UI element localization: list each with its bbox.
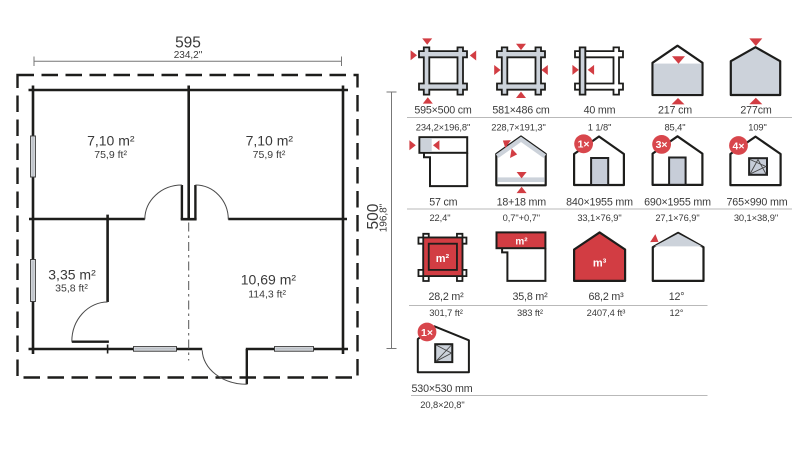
svg-text:35,8 m²: 35,8 m² [513,291,549,303]
svg-text:m³: m³ [593,257,607,269]
svg-text:1×: 1× [421,327,433,339]
svg-text:530×530 mm: 530×530 mm [412,383,473,395]
svg-text:217 cm: 217 cm [658,105,692,117]
svg-text:85,4": 85,4" [664,123,685,133]
svg-text:7,10 m²: 7,10 m² [246,132,294,148]
svg-text:75,9 ft²: 75,9 ft² [94,149,127,161]
svg-text:383 ft²: 383 ft² [517,308,543,318]
svg-text:581×486 cm: 581×486 cm [492,105,550,117]
svg-text:22,4": 22,4" [429,213,450,223]
svg-text:3,35 m²: 3,35 m² [48,267,96,283]
svg-text:7,10 m²: 7,10 m² [87,132,135,148]
svg-text:18+18 mm: 18+18 mm [497,197,547,209]
svg-text:234,2": 234,2" [174,50,203,61]
svg-text:20,8×20,8": 20,8×20,8" [420,400,464,410]
svg-text:75,9 ft²: 75,9 ft² [253,149,286,161]
svg-text:1 1/8": 1 1/8" [588,123,612,133]
svg-text:2407,4 ft³: 2407,4 ft³ [587,308,626,318]
svg-text:30,1×38,9": 30,1×38,9" [734,213,778,223]
svg-text:27,1×76,9": 27,1×76,9" [655,213,699,223]
svg-text:840×1955 mm: 840×1955 mm [566,197,633,209]
svg-text:m²: m² [515,236,528,247]
svg-text:690×1955 mm: 690×1955 mm [644,197,711,209]
svg-text:68,2 m³: 68,2 m³ [589,291,625,303]
svg-text:765×990 mm: 765×990 mm [727,197,788,209]
svg-text:1×: 1× [578,139,590,151]
svg-text:m²: m² [436,253,450,265]
svg-text:301,7 ft²: 301,7 ft² [429,308,463,318]
svg-text:12°: 12° [670,308,684,318]
svg-text:277cm: 277cm [740,105,771,117]
svg-text:12°: 12° [669,291,685,303]
svg-text:35,8 ft²: 35,8 ft² [55,282,88,294]
svg-text:109": 109" [748,123,767,133]
svg-text:3×: 3× [656,139,668,151]
svg-text:28,2 m²: 28,2 m² [429,291,465,303]
svg-text:0,7"+0,7": 0,7"+0,7" [503,213,540,223]
svg-text:228,7×191,3": 228,7×191,3" [491,123,546,133]
svg-text:10,69 m²: 10,69 m² [241,271,297,287]
svg-text:114,3 ft²: 114,3 ft² [248,289,286,301]
svg-text:595: 595 [175,34,201,51]
svg-text:57 cm: 57 cm [429,197,457,209]
svg-text:234,2×196,8": 234,2×196,8" [416,123,471,133]
svg-text:40 mm: 40 mm [584,105,616,117]
svg-text:196,8": 196,8" [379,203,390,232]
svg-text:33,1×76,9": 33,1×76,9" [577,213,621,223]
svg-text:4×: 4× [733,140,745,152]
svg-text:595×500 cm: 595×500 cm [414,105,472,117]
